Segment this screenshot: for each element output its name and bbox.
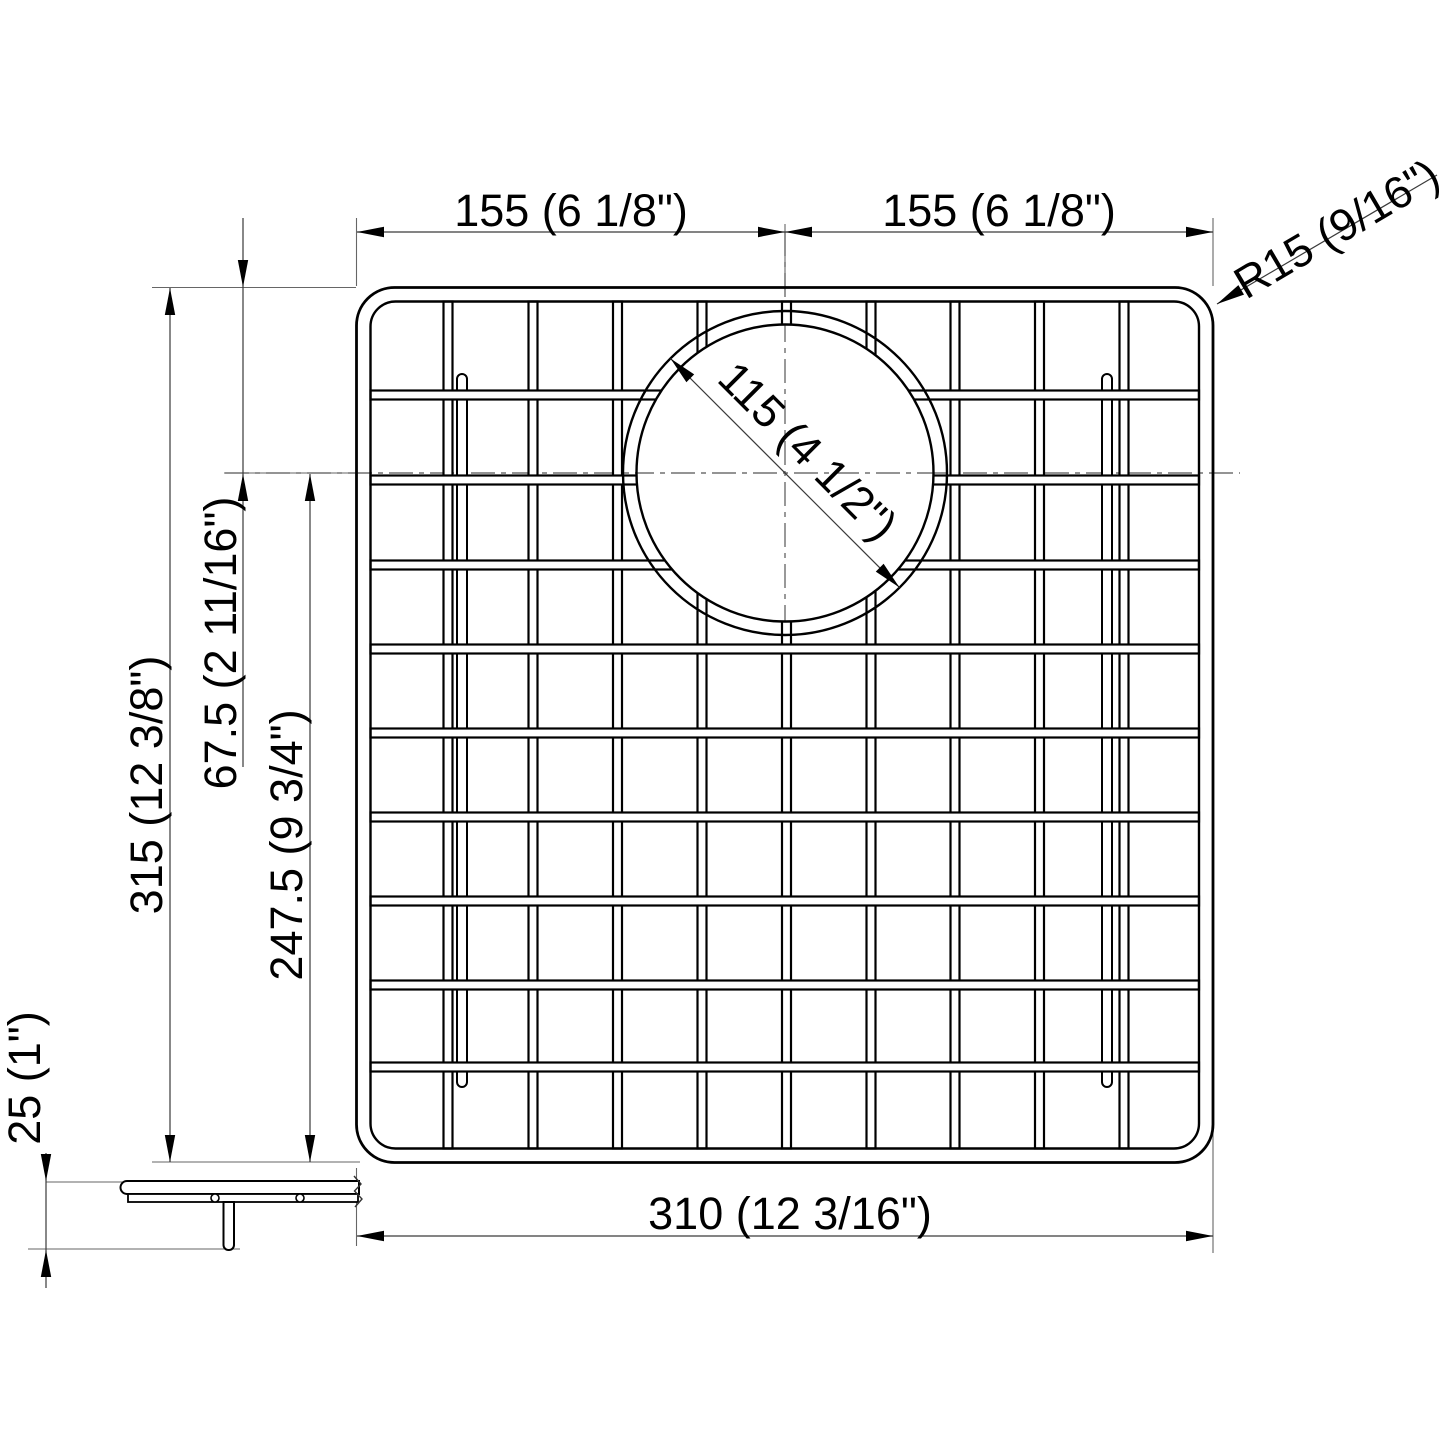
- wire-horizontal: [371, 981, 1200, 990]
- wire-horizontal: [371, 1063, 1200, 1072]
- wire-vertical: [529, 302, 538, 1149]
- wire-vertical: [613, 302, 622, 1149]
- wire-vertical: [1035, 302, 1044, 1149]
- drain-from-bottom-label: 247.5 (9 3/4"): [261, 709, 312, 980]
- side-view-wire-end: [296, 1194, 304, 1202]
- wire-horizontal: [371, 729, 1200, 738]
- wire-vertical: [1120, 302, 1129, 1149]
- drain-from-top-label: 67.5 (2 11/16"): [195, 497, 246, 790]
- dim-top-right-label: 155 (6 1/8"): [882, 185, 1116, 236]
- wire-vertical: [444, 302, 453, 1149]
- grid-height-label: 25 (1"): [0, 1011, 50, 1145]
- wire-horizontal: [371, 645, 1200, 654]
- sink-grid-technical-drawing: 155 (6 1/8") 155 (6 1/8") R15 (9/16") 11…: [0, 0, 1445, 1445]
- side-view-wire-plane: [128, 1194, 358, 1202]
- drawing-canvas: 155 (6 1/8") 155 (6 1/8") R15 (9/16") 11…: [0, 0, 1445, 1445]
- wire-horizontal: [371, 813, 1200, 822]
- overall-depth-label: 315 (12 3/8"): [121, 656, 172, 915]
- side-view-wire-end: [211, 1194, 219, 1202]
- dim-top-left-label: 155 (6 1/8"): [454, 185, 688, 236]
- side-view-frame-tube: [121, 1181, 360, 1194]
- overall-width-label: 310 (12 3/16"): [648, 1188, 932, 1239]
- side-view-foot: [223, 1202, 234, 1250]
- wire-vertical: [951, 302, 960, 1149]
- wire-horizontal: [371, 897, 1200, 906]
